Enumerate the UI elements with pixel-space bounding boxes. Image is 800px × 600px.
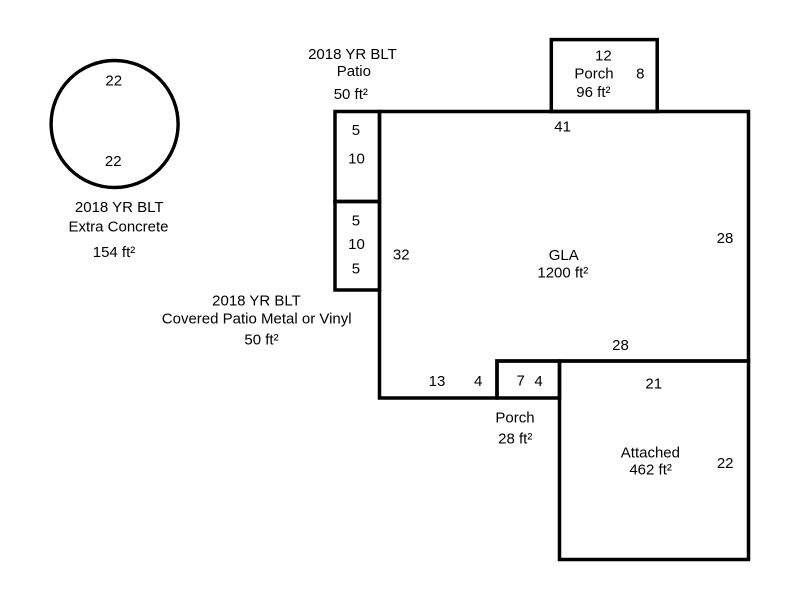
svg-text:32: 32	[393, 247, 410, 264]
svg-text:12: 12	[595, 47, 612, 64]
svg-text:462 ft²: 462 ft²	[629, 462, 672, 479]
svg-text:2018 YR BLT: 2018 YR BLT	[212, 292, 301, 309]
svg-text:Attached: Attached	[621, 444, 680, 461]
svg-text:10: 10	[348, 236, 365, 253]
svg-text:5: 5	[352, 122, 360, 139]
svg-text:8: 8	[636, 65, 644, 82]
svg-text:2018 YR BLT: 2018 YR BLT	[308, 46, 397, 63]
svg-text:Porch: Porch	[574, 65, 613, 82]
svg-text:5: 5	[352, 212, 360, 229]
svg-text:22: 22	[105, 153, 122, 170]
svg-text:50 ft²: 50 ft²	[334, 86, 368, 103]
svg-text:50 ft²: 50 ft²	[244, 332, 278, 349]
svg-text:41: 41	[554, 118, 571, 135]
svg-text:28: 28	[717, 230, 734, 247]
svg-text:28 ft²: 28 ft²	[498, 431, 532, 448]
svg-text:13: 13	[429, 373, 446, 390]
svg-text:2018 YR BLT: 2018 YR BLT	[75, 199, 164, 216]
svg-text:28: 28	[612, 337, 629, 354]
svg-text:Extra Concrete: Extra Concrete	[68, 219, 168, 236]
svg-text:Patio: Patio	[337, 63, 371, 80]
svg-text:22: 22	[717, 455, 734, 472]
svg-text:Covered Patio Metal or Vinyl: Covered Patio Metal or Vinyl	[162, 311, 352, 328]
svg-text:5: 5	[352, 260, 360, 277]
svg-text:1200 ft²: 1200 ft²	[537, 265, 588, 282]
svg-text:154 ft²: 154 ft²	[93, 244, 136, 261]
svg-text:GLA: GLA	[549, 247, 579, 264]
svg-text:96 ft²: 96 ft²	[576, 84, 610, 101]
svg-text:4: 4	[474, 373, 482, 390]
svg-text:22: 22	[105, 72, 122, 89]
svg-text:21: 21	[645, 376, 662, 393]
svg-text:10: 10	[348, 150, 365, 167]
svg-text:Porch: Porch	[495, 410, 534, 427]
svg-text:7: 7	[517, 373, 525, 390]
svg-text:4: 4	[534, 373, 542, 390]
